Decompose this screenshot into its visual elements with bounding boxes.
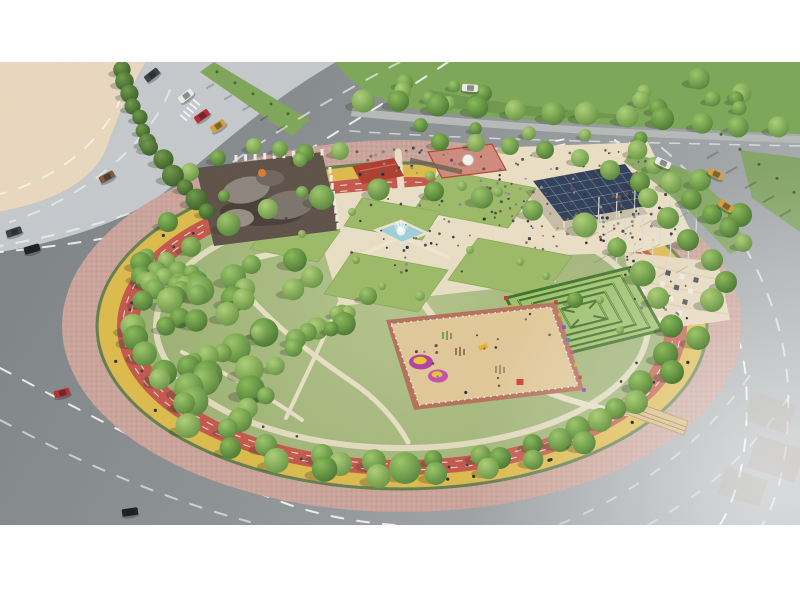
aerial-park-render	[0, 0, 800, 600]
letterbox-top	[0, 0, 800, 62]
letterbox-bottom	[0, 525, 800, 600]
film-grain	[0, 62, 800, 525]
scene-svg	[0, 0, 800, 600]
